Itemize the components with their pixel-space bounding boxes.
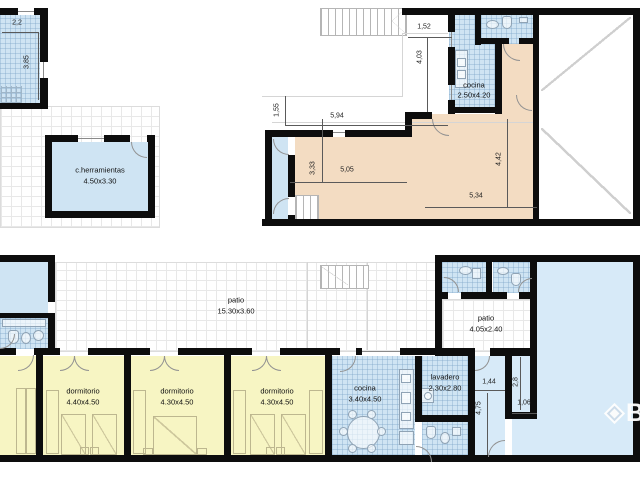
closet-symbol: [133, 390, 146, 454]
closet-symbol: [16, 388, 26, 454]
chair-symbol: [367, 410, 376, 419]
bed-symbol: [153, 416, 197, 455]
dim-label: 1,44: [482, 379, 496, 386]
room-size-label: 4.30x4.50: [161, 398, 194, 406]
wall: [633, 255, 640, 462]
closet-symbol: [309, 390, 323, 454]
nightstand-symbol: [143, 448, 153, 455]
room-label: lavadero: [431, 373, 460, 381]
bidet-symbol: [440, 432, 450, 444]
room-size-label: 3.40x4.50: [349, 395, 382, 403]
floor-plan-image: 2,2 3,85 1,52 4,03 5,94 1,55 3,33 5,05 4…: [0, 0, 640, 480]
wall: [0, 455, 640, 462]
closet-symbol: [26, 388, 36, 454]
washer-drum-symbol: [424, 392, 432, 400]
wall: [519, 292, 537, 299]
sink-symbol: [401, 412, 411, 421]
wall: [48, 255, 55, 302]
room-label: cocina: [354, 384, 376, 392]
wall: [415, 356, 422, 422]
dim-label: 2,8: [513, 377, 520, 387]
room-size-label: 4.40x4.50: [67, 398, 100, 406]
chair-symbol: [348, 444, 357, 453]
wall: [224, 355, 231, 455]
wall: [178, 348, 252, 355]
chair-symbol: [339, 427, 348, 436]
dim-label: 4,75: [476, 401, 483, 415]
nightstand-symbol: [197, 448, 207, 455]
nightstand-symbol: [266, 447, 275, 455]
wall: [0, 313, 48, 318]
room-label: dormitorio: [260, 387, 293, 395]
nightstand-symbol: [90, 447, 99, 455]
dimension-line: [487, 393, 488, 455]
wall: [505, 356, 512, 414]
dim-label: 1,06: [517, 400, 531, 407]
cabinet-symbol: [472, 268, 481, 279]
wall: [88, 348, 150, 355]
wall: [468, 350, 475, 455]
stair-corridor-line: [307, 262, 308, 350]
room-lower-left: [0, 262, 48, 315]
wall: [435, 255, 640, 262]
closet-symbol: [233, 390, 246, 454]
wall: [48, 313, 55, 350]
room-label: patio: [478, 314, 494, 322]
room-size-label: 4.30x4.50: [261, 398, 294, 406]
room-label: dormitorio: [66, 387, 99, 395]
sink-symbol: [33, 330, 44, 341]
room-size-label: 2.30x2.80: [429, 384, 462, 392]
wall: [415, 415, 468, 422]
garage-area: [512, 417, 537, 455]
sink-symbol: [401, 374, 411, 383]
wall: [325, 355, 332, 455]
wall: [0, 255, 55, 262]
chair-symbol: [377, 427, 386, 436]
room-label: dormitorio: [160, 387, 193, 395]
wall: [490, 350, 537, 356]
bidet-symbol: [21, 332, 31, 344]
stairs-arrow: [322, 267, 348, 285]
room-size-label: 15.30x3.60: [217, 307, 254, 315]
window-symbol: [362, 351, 400, 352]
wall: [435, 350, 468, 356]
room-label: patio: [228, 296, 244, 304]
dimension-line: [512, 413, 537, 414]
wall: [0, 348, 16, 355]
closet-symbol: [46, 390, 59, 454]
dimension-line: [475, 390, 505, 391]
nightstand-symbol: [80, 447, 89, 455]
stove-symbol: [401, 392, 411, 404]
nightstand-symbol: [276, 447, 285, 455]
chair-symbol: [367, 444, 376, 453]
lower-floor-plan: 1,44 4,75 2,8 1,06 patio 15.30x3.60 pati…: [0, 0, 640, 480]
fridge-symbol: [399, 431, 414, 445]
room-size-label: 4.05x2.40: [470, 325, 503, 333]
sink-symbol: [452, 427, 461, 436]
wall: [280, 348, 340, 355]
wall: [36, 355, 43, 455]
wall: [34, 348, 60, 355]
sink-symbol: [459, 266, 472, 275]
garage-area: [537, 262, 633, 455]
sink-symbol: [497, 267, 509, 275]
wall: [124, 355, 131, 455]
wall: [435, 262, 442, 356]
toilet-symbol: [426, 426, 436, 439]
chair-symbol: [348, 410, 357, 419]
wall: [435, 292, 448, 299]
counter-symbol: [2, 319, 46, 327]
watermark-letter: B: [626, 401, 640, 426]
wall: [461, 292, 507, 299]
